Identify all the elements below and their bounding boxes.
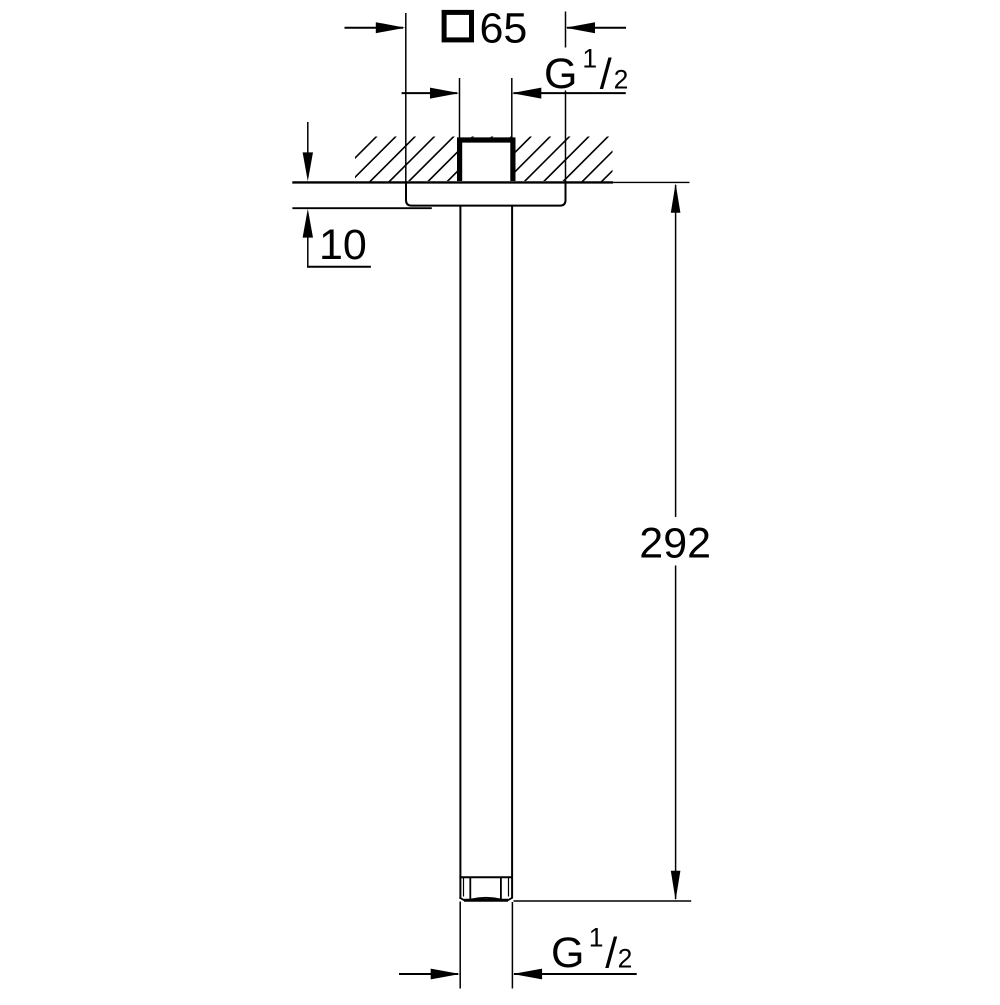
svg-text:2: 2 xyxy=(618,943,633,973)
svg-text:2: 2 xyxy=(614,64,629,94)
svg-text:1: 1 xyxy=(589,923,604,953)
svg-text:292: 292 xyxy=(639,520,711,568)
svg-text:/: / xyxy=(600,50,612,98)
svg-text:10: 10 xyxy=(319,221,367,269)
svg-text:G: G xyxy=(544,50,577,98)
svg-text:65: 65 xyxy=(480,4,528,52)
svg-text:/: / xyxy=(605,929,617,977)
svg-text:1: 1 xyxy=(582,43,597,73)
svg-text:G: G xyxy=(551,929,584,977)
